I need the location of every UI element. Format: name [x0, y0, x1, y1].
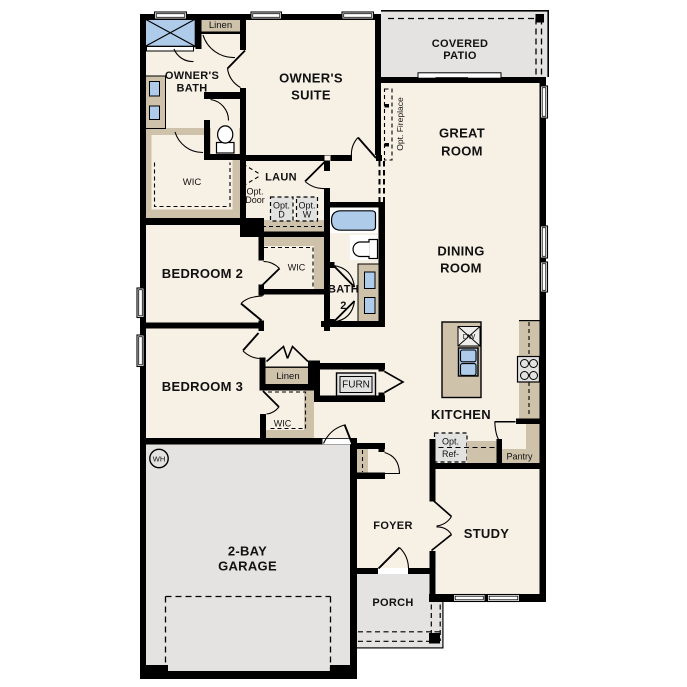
svg-text:ROOM: ROOM	[440, 261, 482, 276]
svg-text:BATH: BATH	[328, 284, 359, 296]
svg-text:GREAT: GREAT	[439, 126, 485, 141]
svg-text:Pantry: Pantry	[506, 452, 533, 462]
svg-text:DINING: DINING	[437, 244, 484, 259]
svg-text:D: D	[278, 210, 285, 220]
svg-text:2: 2	[340, 300, 346, 312]
svg-text:BEDROOM 3: BEDROOM 3	[162, 379, 243, 394]
svg-text:Linen: Linen	[209, 20, 232, 31]
svg-text:OWNER'S: OWNER'S	[165, 70, 219, 82]
svg-text:BATH: BATH	[177, 83, 208, 95]
svg-text:Opt. Fireplace: Opt. Fireplace	[395, 97, 405, 151]
svg-text:BEDROOM 2: BEDROOM 2	[162, 266, 243, 281]
svg-text:Linen: Linen	[276, 371, 299, 382]
svg-text:Ref-: Ref-	[442, 449, 459, 459]
svg-text:FOYER: FOYER	[373, 520, 412, 532]
svg-text:SUITE: SUITE	[291, 88, 331, 103]
svg-text:LAUN: LAUN	[265, 172, 297, 184]
svg-text:PATIO: PATIO	[443, 50, 477, 62]
svg-text:OWNER'S: OWNER'S	[279, 71, 343, 86]
svg-text:DW: DW	[463, 332, 476, 341]
svg-text:FURN: FURN	[342, 380, 370, 391]
svg-text:WIC: WIC	[183, 177, 202, 188]
svg-text:WIC: WIC	[288, 263, 306, 273]
svg-text:COVERED: COVERED	[432, 38, 489, 50]
svg-text:GARAGE: GARAGE	[218, 559, 277, 574]
svg-text:W: W	[303, 210, 312, 220]
svg-text:KITCHEN: KITCHEN	[431, 407, 491, 422]
svg-text:PORCH: PORCH	[372, 597, 413, 609]
svg-text:STUDY: STUDY	[464, 526, 510, 541]
svg-text:ROOM: ROOM	[441, 144, 483, 159]
svg-text:2-BAY: 2-BAY	[228, 544, 267, 559]
svg-text:Opt.: Opt.	[442, 437, 459, 447]
svg-text:Door: Door	[245, 195, 265, 205]
svg-text:WIC: WIC	[274, 419, 292, 429]
svg-text:WH: WH	[153, 455, 166, 464]
